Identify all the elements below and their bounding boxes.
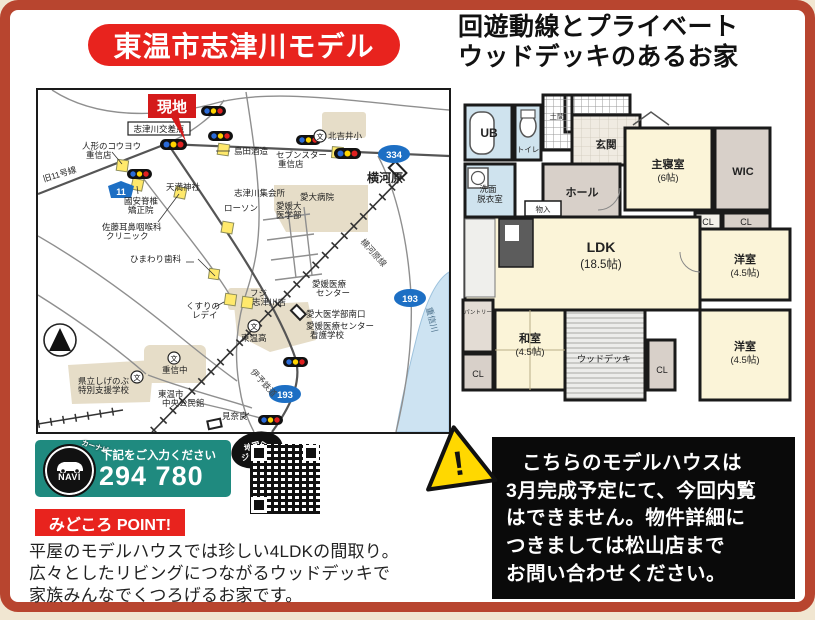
svg-text:玄関: 玄関	[596, 138, 617, 151]
headline-line2: ウッドデッキのあるお家	[458, 43, 798, 73]
school-icon-toonko: 文	[248, 320, 260, 332]
svg-text:洋室: 洋室	[734, 252, 756, 266]
car-navi-icon: NAVI	[43, 444, 96, 497]
qr-finder	[303, 445, 319, 461]
svg-text:193: 193	[402, 294, 418, 305]
qr-code	[250, 444, 320, 514]
title-banner: 東温市志津川モデル	[88, 24, 400, 66]
label-tenma: 天満神社	[166, 182, 201, 192]
access-map-svg: 11 334 193 193 文 文 文 文 島田酒造 人形のコウヨウ 重信店 …	[38, 90, 449, 432]
school-icon-shigenobu-chu: 文	[168, 352, 180, 364]
label-kuniyasu2: 矯正院	[128, 205, 154, 215]
svg-text:(4.5帖): (4.5帖)	[730, 267, 759, 279]
midokoro-point-badge: みどころ POINT!	[35, 509, 185, 536]
svg-text:現地: 現地	[157, 98, 187, 116]
label-himawari: ひまわり歯科	[130, 254, 182, 264]
compass-icon	[44, 324, 76, 356]
svg-text:文: 文	[251, 322, 258, 331]
svg-text:CL: CL	[702, 217, 714, 227]
svg-text:UB: UB	[480, 126, 498, 140]
label-yokogawara: 横河原	[367, 170, 403, 185]
svg-text:(18.5帖): (18.5帖)	[580, 257, 622, 271]
label-aidai-minami: 愛大医学部南口	[306, 309, 366, 319]
svg-text:物入: 物入	[536, 204, 551, 214]
label-iryo2: センター	[316, 288, 350, 298]
notice-box: こちらのモデルハウスは 3月完成予定にて、今回内覧 はできません。物件詳細に つ…	[492, 437, 795, 599]
svg-text:334: 334	[386, 150, 403, 161]
svg-text:(4.5帖): (4.5帖)	[515, 346, 544, 358]
label-kominkan2: 中央公民館	[162, 398, 205, 408]
label-shimada: 島田酒造	[234, 146, 269, 156]
label-shigenobu-chu: 重信中	[162, 365, 188, 375]
room-doma	[543, 95, 572, 150]
label-ehimedai2: 医学部	[276, 210, 302, 220]
floor-plan-svg: UB トイレ 土間 玄関 洗面 脱衣室 ホール 物入 主寝室 (6帖) WIC …	[455, 92, 805, 427]
svg-text:文: 文	[317, 132, 324, 141]
point-description: 平屋のモデルハウスでは珍しい4LDKの間取り。 広々としたリビングにつながるウッ…	[29, 541, 434, 606]
headline-line1: 回遊動線とプライベート	[458, 13, 798, 43]
label-ningyo2: 重信店	[86, 150, 112, 160]
svg-text:和室: 和室	[519, 331, 541, 345]
navi-word: NAVI	[58, 473, 81, 482]
label-minara: 見奈良	[222, 411, 248, 421]
school-icon-kitayoshii: 文	[314, 130, 326, 142]
label-fuji2: 志津川店	[252, 297, 287, 307]
label-seven2: 重信店	[278, 159, 304, 169]
school-icon-shien: 文	[131, 371, 143, 383]
svg-text:パントリー: パントリー	[464, 309, 492, 316]
label-kitayoshii: 北吉井小	[328, 131, 363, 141]
svg-text:洗面: 洗面	[479, 184, 497, 194]
svg-text:(4.5帖): (4.5帖)	[730, 354, 759, 366]
car-icon	[55, 459, 85, 473]
svg-text:(6帖): (6帖)	[657, 172, 678, 184]
headline: 回遊動線とプライベート ウッドデッキのあるお家	[458, 13, 798, 72]
svg-text:CL: CL	[656, 365, 668, 375]
svg-text:WIC: WIC	[732, 166, 753, 178]
svg-text:文: 文	[171, 354, 178, 363]
kitchen-counter	[465, 219, 495, 297]
floor-plan: UB トイレ 土間 玄関 洗面 脱衣室 ホール 物入 主寝室 (6帖) WIC …	[455, 92, 805, 427]
qr-finder	[251, 445, 267, 461]
qr-finder	[251, 497, 267, 513]
svg-text:CL: CL	[472, 369, 484, 379]
label-kusuri2: レデイ	[192, 310, 218, 320]
svg-text:主寝室: 主寝室	[652, 157, 685, 171]
station-minara-marker	[207, 419, 221, 430]
svg-text:193: 193	[277, 390, 293, 401]
label-rail1: 横河原線	[359, 237, 390, 269]
label-lawson: ローソン	[224, 203, 258, 213]
label-shien2: 特別支援学校	[78, 385, 130, 395]
svg-text:トイレ: トイレ	[517, 145, 540, 154]
label-sato2: クリニック	[106, 231, 149, 241]
label-aidai-byoin: 愛大病院	[300, 192, 335, 202]
svg-text:ホール: ホール	[566, 186, 599, 199]
label-rail2: 伊予鉄道	[249, 367, 280, 399]
svg-text:文: 文	[134, 373, 141, 382]
label-toonko: 東温高	[241, 333, 267, 343]
svg-text:洋室: 洋室	[734, 339, 756, 353]
label-shukaijo: 志津川集会所	[234, 188, 286, 198]
label-kango2: 看護学校	[310, 330, 345, 340]
access-map: 11 334 193 193 文 文 文 文 島田酒造 人形のコウヨウ 重信店 …	[36, 88, 451, 434]
warning-triangle-icon: !	[415, 418, 500, 498]
svg-text:CL: CL	[740, 217, 752, 227]
svg-text:LDK: LDK	[587, 239, 616, 255]
svg-text:ウッドデッキ: ウッドデッキ	[577, 353, 631, 364]
svg-text:脱衣室: 脱衣室	[477, 194, 503, 204]
svg-text:土間: 土間	[550, 111, 565, 121]
car-navi-panel: NAVI カーナビ 下記をご入力ください 294 780 210 地図へ ジャン…	[35, 440, 231, 497]
room-pantry	[463, 300, 493, 352]
